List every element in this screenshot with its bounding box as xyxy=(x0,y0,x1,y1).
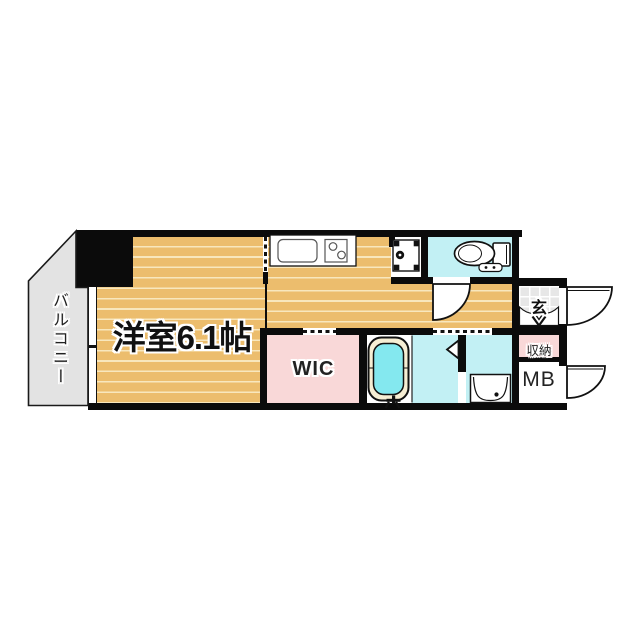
balcony-label: バルコニー xyxy=(46,292,70,410)
tub-faucet-leg xyxy=(386,402,390,408)
toilet-bowl-icon xyxy=(455,242,495,266)
toilet-door-swing xyxy=(433,284,470,320)
washer-pan-corner xyxy=(394,241,400,247)
bath-folding-door-icon xyxy=(447,341,459,359)
fixtures-layer xyxy=(0,0,640,640)
meter-box-door-swing xyxy=(567,366,605,398)
toilet-tank xyxy=(493,243,510,266)
toilet-bolt xyxy=(485,266,488,269)
entrance-label: 玄 xyxy=(519,294,559,318)
storage-label: 収納 xyxy=(519,340,559,359)
main-room-label: 洋室6.1帖 xyxy=(97,311,267,359)
washbasin-drain xyxy=(494,392,498,396)
washer-pan-corner xyxy=(414,265,420,271)
stove-burner-1 xyxy=(329,243,337,251)
meter-box-label: MB xyxy=(519,368,559,392)
washer-pan-corner xyxy=(394,265,400,271)
bathtub-water xyxy=(374,344,404,395)
entrance-door-swing xyxy=(567,287,612,325)
toilet-base xyxy=(479,264,502,272)
stove-burner-2 xyxy=(338,251,346,259)
washbasin-bowl xyxy=(474,377,508,401)
kitchen-sink-icon xyxy=(278,240,317,263)
floorplan-canvas: 洋室6.1帖 バルコニー WIC 玄 収納 MB xyxy=(0,0,640,640)
washer-drain-center xyxy=(399,254,402,257)
tub-faucet-leg xyxy=(396,402,400,408)
washer-pan-corner xyxy=(414,241,420,247)
wic-label: WIC xyxy=(267,358,360,381)
tub-faucet-bar xyxy=(387,399,401,402)
toilet-bolt xyxy=(493,266,496,269)
